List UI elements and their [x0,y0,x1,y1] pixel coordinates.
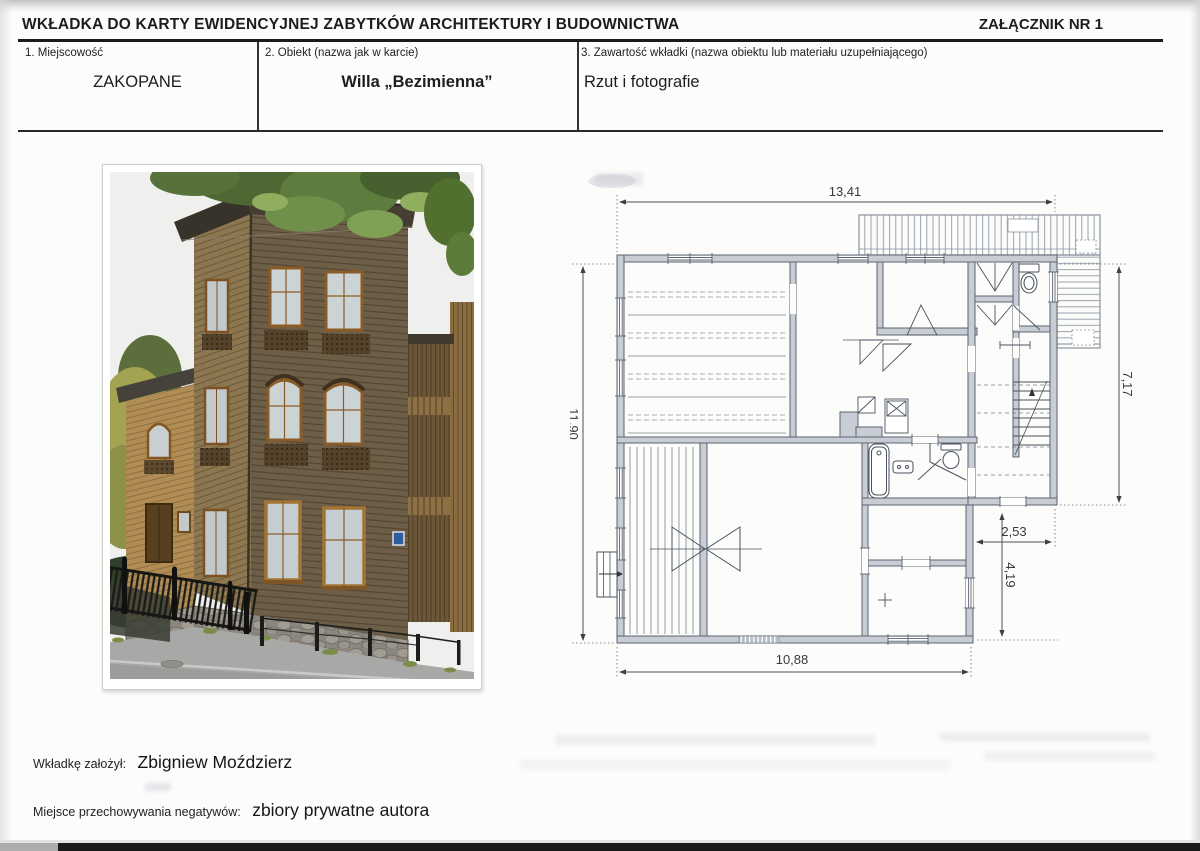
dimension-label-bottom: 10,88 [776,652,809,667]
scan-smudge [145,783,171,791]
founder-label: Wkładkę założył: [33,757,126,771]
founder-name: Zbigniew Moździerz [138,752,293,772]
scan-smudge [595,173,643,185]
field-label-object: 2. Obiekt (nazwa jak w karcie) [265,47,418,59]
negatives-value: zbiory prywatne autora [252,800,429,820]
negatives-line: Miejsce przechowywania negatywów: zbiory… [33,800,429,821]
table-divider [577,42,579,130]
field-label-locality: 1. Miejscowość [25,47,103,59]
attachment-number: ZAŁĄCZNIK NR 1 [979,16,1103,33]
floor-plan-overlay: 13,41 11,90 7,17 2,53 4,19 10,88 [570,160,1170,720]
page-title: WKŁADKA DO KARTY EWIDENCYJNEJ ZABYTKÓW A… [22,16,679,34]
scan-smudge [555,735,875,745]
scan-edge-top [0,0,1200,13]
scanned-record-card: WKŁADKA DO KARTY EWIDENCYJNEJ ZABYTKÓW A… [0,0,1200,851]
dimension-label-right: 7,17 [1120,371,1135,396]
villa-photo-drawing [110,172,474,679]
scan-bottom-bar [58,843,1200,851]
header-rule [18,39,1163,42]
villa-photograph [102,164,482,690]
negatives-label: Miejsce przechowywania negatywów: [33,805,241,819]
scan-edge-right [1190,0,1200,851]
field-value-object: Willa „Bezimienna” [257,73,577,92]
field-value-contents: Rzut i fotografie [584,73,700,92]
scan-edge-left [0,0,12,851]
scan-bottom-bar-left [0,843,58,851]
founder-line: Wkładkę założył: Zbigniew Moździerz [33,752,292,773]
dimension-label-left: 11,90 [570,408,581,440]
scan-smudge [940,733,1150,741]
dimension-label-inner-width: 2,53 [1001,524,1026,539]
scan-smudge [985,752,1155,761]
dimension-label-inner-height: 4,19 [1003,562,1018,587]
field-label-contents: 3. Zawartość wkładki (nazwa obiektu lub … [581,47,927,59]
field-value-locality: ZAKOPANE [18,73,257,92]
table-bottom-rule [18,130,1163,132]
scan-smudge [520,760,950,770]
dimension-label-top: 13,41 [829,184,862,199]
floor-plan-svg: 13,41 11,90 7,17 2,53 4,19 10,88 [570,160,1170,720]
